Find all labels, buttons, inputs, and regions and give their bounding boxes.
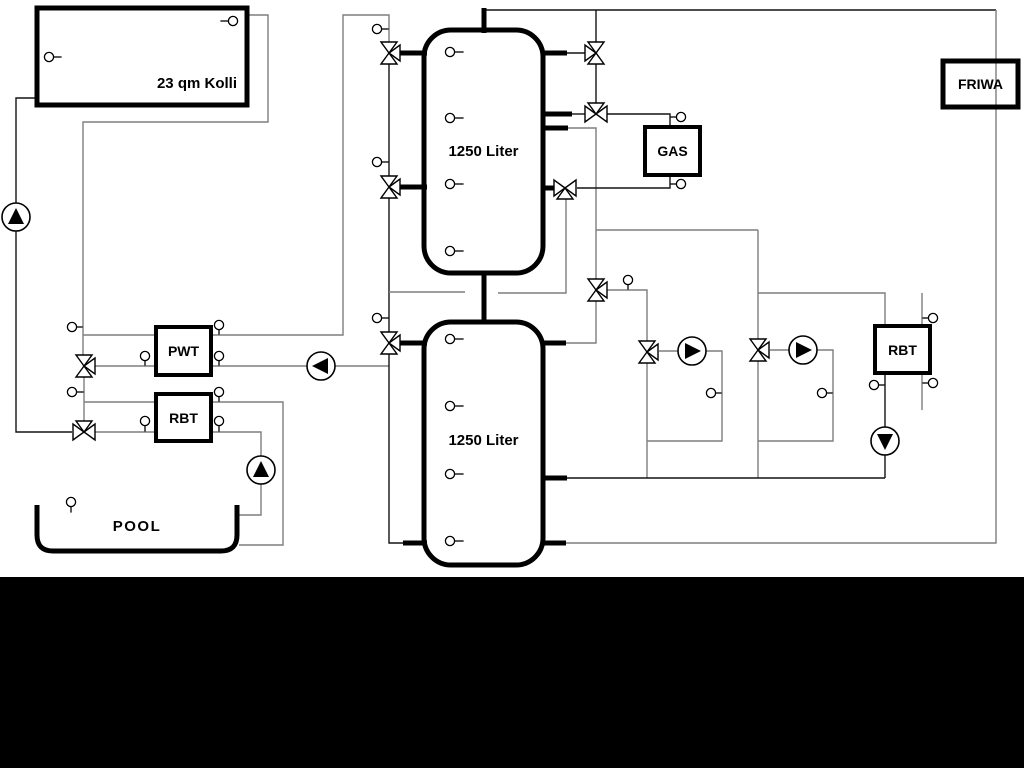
pipe — [211, 432, 261, 456]
pwt-heat-exchanger-box — [156, 327, 211, 375]
temperature-sensor-icon — [67, 322, 76, 331]
temperature-sensor-icon — [67, 387, 76, 396]
piping-layer — [0, 0, 1024, 577]
pipe — [389, 354, 404, 543]
schematic-page: 23 qm Kolli 1250 Liter 1250 Liter GAS FR… — [0, 0, 1024, 768]
pipe — [239, 484, 261, 515]
temperature-sensor-icon — [445, 246, 454, 255]
temperature-sensor-icon — [214, 351, 223, 360]
temperature-sensor-icon — [140, 416, 149, 425]
temperature-sensor-icon — [817, 388, 826, 397]
temperature-sensor-icon — [445, 536, 454, 545]
temperature-sensor-icon — [445, 113, 454, 122]
rbt-heat-exchanger-right-box — [875, 326, 930, 373]
collector-box — [37, 8, 247, 105]
friwa-box — [943, 61, 1018, 107]
temperature-sensor-icon — [445, 179, 454, 188]
temperature-sensor-icon — [623, 275, 632, 284]
pipe — [567, 128, 596, 279]
temperature-sensor-icon — [228, 16, 237, 25]
buffer-tank-bottom — [424, 322, 543, 565]
temperature-sensor-icon — [372, 24, 381, 33]
pipe — [16, 230, 72, 432]
temperature-sensor-icon — [140, 351, 149, 360]
temperature-sensor-icon — [214, 320, 223, 329]
temperature-sensor-icon — [928, 313, 937, 322]
gas-boiler-box — [645, 127, 700, 175]
rbt-heat-exchanger-left-box — [156, 394, 211, 441]
temperature-sensor-icon — [214, 387, 223, 396]
pipe — [607, 290, 647, 341]
temperature-sensor-icon — [66, 497, 75, 506]
pipe — [566, 301, 596, 343]
pipe — [16, 98, 37, 204]
pool-tub — [37, 505, 237, 551]
temperature-sensor-icon — [214, 416, 223, 425]
temperature-sensor-icon — [676, 112, 685, 121]
temperature-sensor-icon — [445, 334, 454, 343]
temperature-sensor-icon — [445, 469, 454, 478]
temperature-sensor-icon — [869, 380, 878, 389]
buffer-tank-top — [424, 30, 543, 273]
temperature-sensor-icon — [706, 388, 715, 397]
temperature-sensor-icon — [372, 313, 381, 322]
temperature-sensor-icon — [445, 47, 454, 56]
temperature-sensor-icon — [372, 157, 381, 166]
temperature-sensor-icon — [928, 378, 937, 387]
temperature-sensor-icon — [445, 401, 454, 410]
temperature-sensor-icon — [44, 52, 53, 61]
pipe — [758, 293, 885, 326]
bottom-black-bar — [0, 577, 1024, 768]
temperature-sensor-icon — [676, 179, 685, 188]
